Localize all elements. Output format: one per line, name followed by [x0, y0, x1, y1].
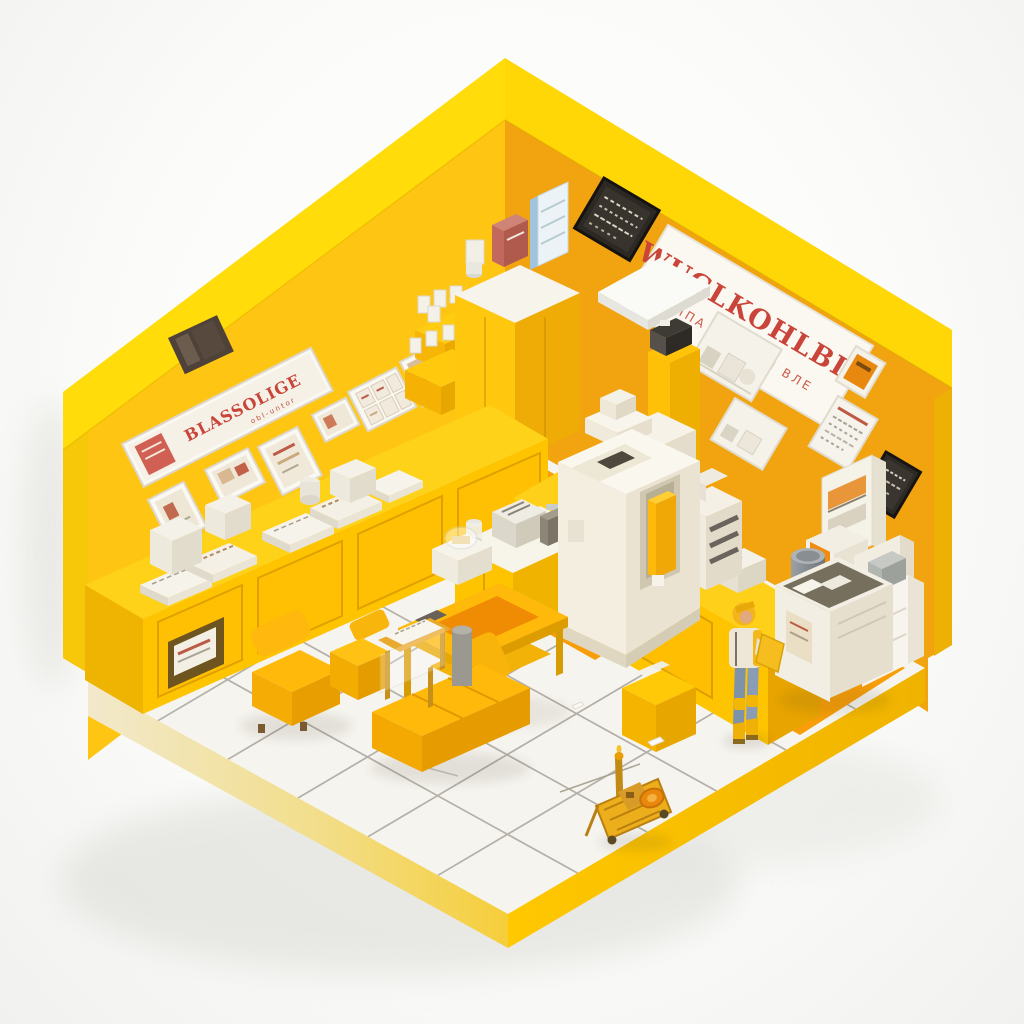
waste-column	[452, 626, 472, 687]
scene-canvas: BLASSOLIGE obl-untor	[0, 0, 1024, 1024]
kiosk-niche	[640, 474, 680, 590]
white-dispenser	[466, 240, 484, 278]
isometric-shop-scene: BLASSOLIGE obl-untor	[0, 0, 1024, 1024]
wall-end-cap-right	[934, 388, 952, 656]
